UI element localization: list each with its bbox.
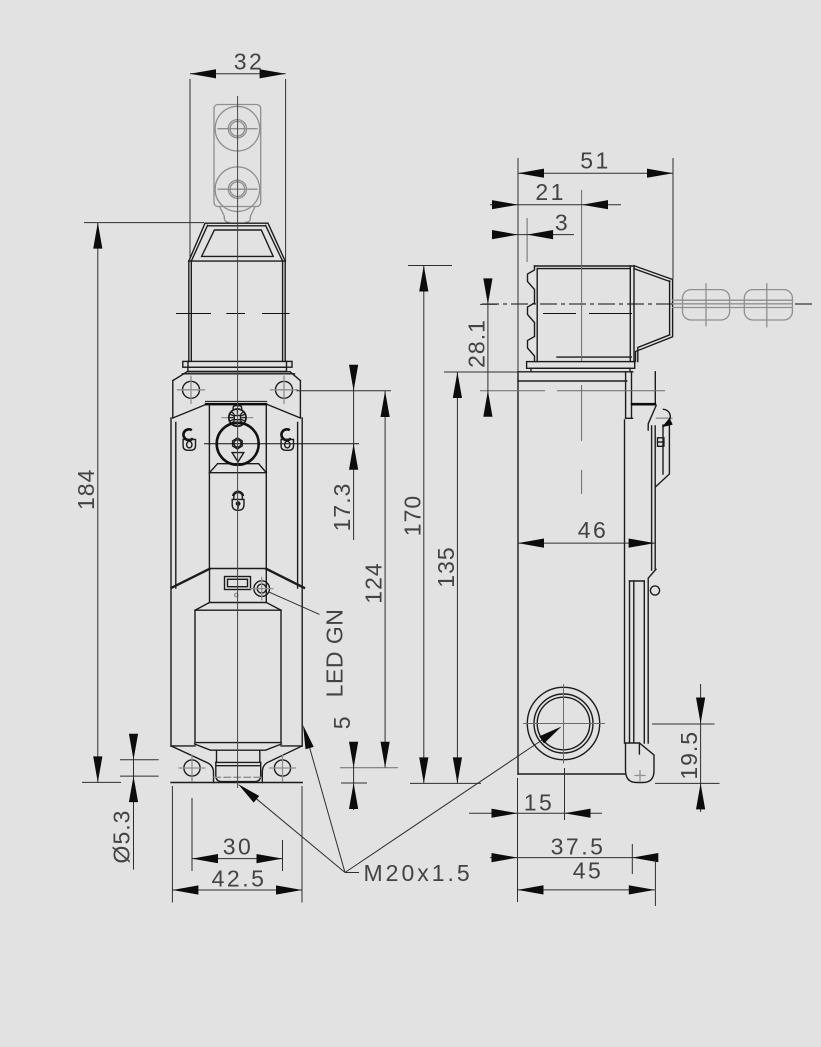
svg-text:15: 15 <box>524 790 555 816</box>
svg-text:46: 46 <box>578 517 609 543</box>
svg-text:42.5: 42.5 <box>212 866 267 892</box>
svg-text:124: 124 <box>361 562 387 603</box>
svg-text:45: 45 <box>573 858 604 884</box>
svg-text:Ø5.3: Ø5.3 <box>109 810 135 864</box>
svg-text:170: 170 <box>399 495 425 536</box>
svg-text:32: 32 <box>234 49 265 75</box>
svg-text:37.5: 37.5 <box>551 834 606 860</box>
svg-text:19.5: 19.5 <box>676 731 702 780</box>
svg-text:28.1: 28.1 <box>463 319 489 368</box>
svg-text:51: 51 <box>580 148 611 174</box>
svg-text:30: 30 <box>223 834 254 860</box>
svg-text:21: 21 <box>535 179 566 205</box>
svg-text:5: 5 <box>329 715 355 729</box>
svg-text:LED GN: LED GN <box>322 609 348 698</box>
svg-text:3: 3 <box>555 210 570 236</box>
svg-text:184: 184 <box>73 469 99 510</box>
svg-text:17.3: 17.3 <box>329 483 355 532</box>
svg-text:M20x1.5: M20x1.5 <box>364 860 473 886</box>
svg-text:135: 135 <box>433 546 459 587</box>
